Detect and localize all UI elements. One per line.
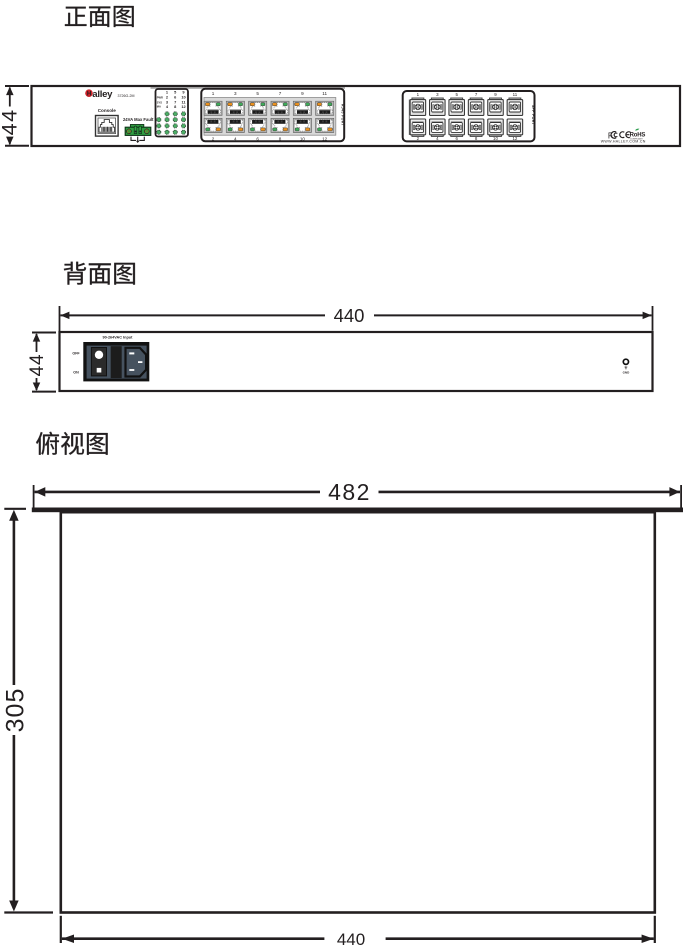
svg-text:44: 44	[27, 354, 48, 377]
svg-text:OFF: OFF	[72, 351, 80, 355]
svg-text:44: 44	[0, 108, 22, 135]
svg-text:H: H	[87, 91, 92, 98]
svg-text:11: 11	[322, 91, 327, 96]
svg-text:12: 12	[512, 136, 517, 141]
svg-text:alley: alley	[92, 89, 113, 100]
svg-text:305: 305	[1, 688, 29, 733]
svg-text:11: 11	[513, 92, 518, 97]
svg-text:90-264VAC Input: 90-264VAC Input	[102, 335, 133, 339]
svg-text:10: 10	[300, 136, 306, 141]
svg-text:SYS: SYS	[157, 100, 162, 104]
svg-text:5: 5	[256, 91, 259, 96]
svg-text:RJ45 PORT: RJ45 PORT	[341, 104, 345, 127]
svg-text:MA: MA	[157, 105, 161, 109]
svg-text:9: 9	[301, 91, 304, 96]
svg-text:3726G-2M: 3726G-2M	[118, 94, 135, 98]
svg-text:3: 3	[234, 91, 237, 96]
svg-text:12: 12	[322, 136, 328, 141]
svg-text:6: 6	[256, 136, 259, 141]
svg-text:8: 8	[279, 136, 282, 141]
svg-text:4: 4	[234, 136, 237, 141]
svg-text:10: 10	[493, 136, 498, 141]
svg-text:2: 2	[212, 136, 215, 141]
svg-text:482: 482	[328, 479, 371, 505]
svg-text:24VA Max Fault: 24VA Max Fault	[123, 117, 154, 122]
svg-text:PWR: PWR	[157, 95, 163, 99]
svg-text:SFP PORT: SFP PORT	[531, 105, 535, 126]
svg-text:GND: GND	[623, 371, 631, 375]
svg-text:WWW.HALLEY.COM.CN: WWW.HALLEY.COM.CN	[601, 139, 646, 143]
svg-text:7: 7	[279, 91, 282, 96]
svg-text:1: 1	[212, 91, 215, 96]
svg-text:Console: Console	[98, 108, 117, 113]
svg-text:440: 440	[334, 305, 365, 326]
svg-text:440: 440	[337, 930, 365, 949]
svg-text:ON: ON	[73, 370, 79, 374]
